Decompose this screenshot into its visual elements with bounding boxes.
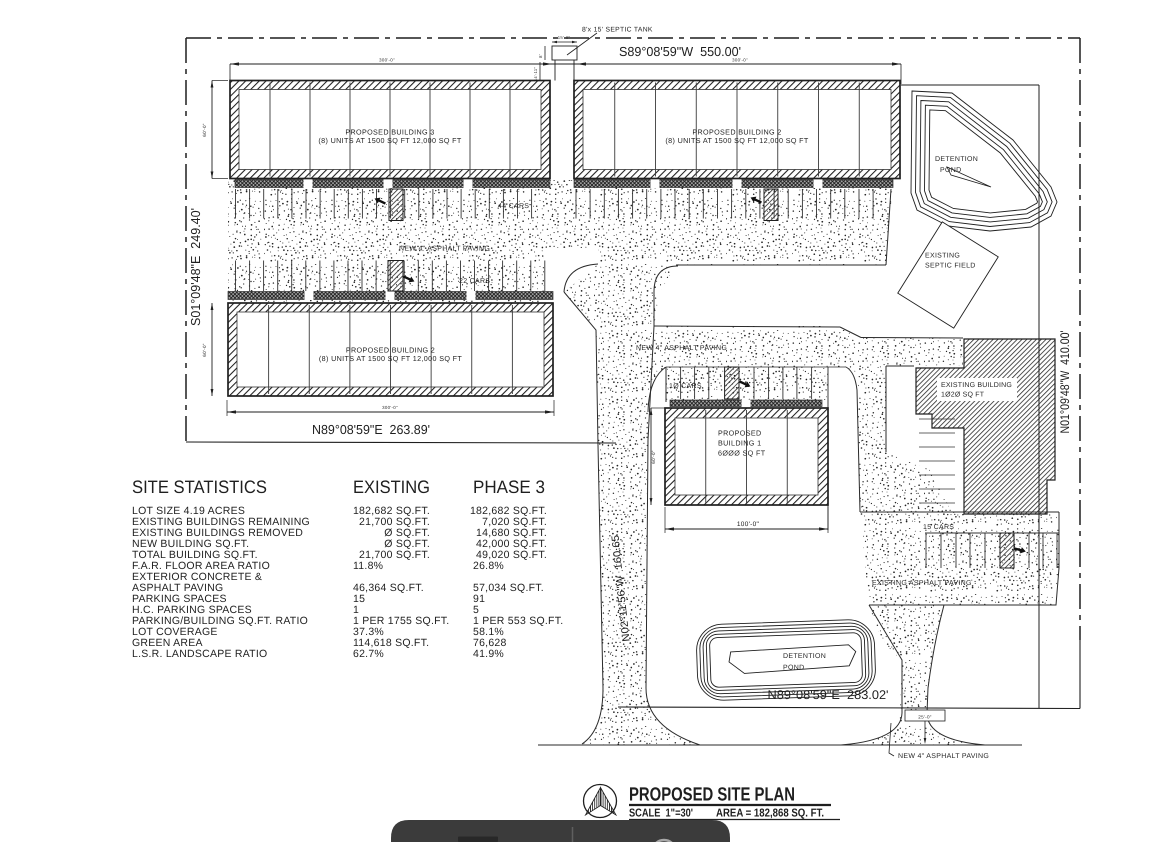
svg-text:S01°09'48"E 249.40': S01°09'48"E 249.40' bbox=[188, 208, 203, 326]
svg-text:SCALE 1"=30': SCALE 1"=30' bbox=[629, 808, 693, 820]
svg-text:(8) UNITS AT 1500 SQ FT 12,00: (8) UNITS AT 1500 SQ FT 12,000 SQ FT bbox=[319, 354, 462, 363]
svg-text:NEW 4" ASPHALT PAVING: NEW 4" ASPHALT PAVING bbox=[898, 753, 989, 760]
svg-text:POND: POND bbox=[783, 665, 804, 672]
svg-text:1Ø2Ø SQ FT: 1Ø2Ø SQ FT bbox=[941, 391, 985, 399]
svg-text:8': 8' bbox=[538, 54, 543, 58]
svg-text:N89°08'59"E 263.89': N89°08'59"E 263.89' bbox=[312, 422, 430, 437]
svg-text:6ØØØ SQ FT: 6ØØØ SQ FT bbox=[718, 449, 766, 458]
svg-text:14'-11": 14'-11" bbox=[533, 67, 538, 81]
svg-text:DETENTION: DETENTION bbox=[935, 156, 978, 163]
svg-text:SEPTIC FIELD: SEPTIC FIELD bbox=[925, 263, 976, 270]
svg-text:(8) UNITS AT 1500 SQ FT 12,00: (8) UNITS AT 1500 SQ FT 12,000 SQ FT bbox=[318, 136, 461, 145]
svg-text:EXISTING BUILDING: EXISTING BUILDING bbox=[941, 382, 1012, 389]
svg-text:AREA = 182,868 SQ. FT.: AREA = 182,868 SQ. FT. bbox=[716, 808, 824, 820]
svg-text:44 CARS: 44 CARS bbox=[498, 203, 529, 210]
svg-text:SITE STATISTICS: SITE STATISTICS bbox=[132, 477, 267, 497]
svg-text:26.8%: 26.8% bbox=[473, 560, 504, 572]
svg-text:DETENTION: DETENTION bbox=[783, 653, 826, 660]
svg-text:1Ø CARS: 1Ø CARS bbox=[669, 382, 702, 390]
svg-text:NEW 4" ASPHALT PAVING: NEW 4" ASPHALT PAVING bbox=[399, 246, 490, 253]
svg-text:PHASE 3: PHASE 3 bbox=[473, 477, 545, 497]
svg-text:100'-0": 100'-0" bbox=[737, 521, 760, 528]
svg-text:POND: POND bbox=[940, 167, 961, 174]
svg-text:(8) UNITS AT 1500 SQ FT 12,00: (8) UNITS AT 1500 SQ FT 12,000 SQ FT bbox=[665, 136, 808, 145]
svg-text:60'-0": 60'-0" bbox=[651, 450, 656, 464]
svg-text:N01°09'48"W 410.00': N01°09'48"W 410.00' bbox=[1058, 331, 1072, 434]
svg-text:L.S.R. LANDSCAPE RATIO: L.S.R. LANDSCAPE RATIO bbox=[132, 648, 267, 660]
svg-text:60'-0": 60'-0" bbox=[202, 123, 207, 137]
svg-text:N89°08'59"E 283.02': N89°08'59"E 283.02' bbox=[768, 688, 889, 702]
svg-text:PROPOSED SITE PLAN: PROPOSED SITE PLAN bbox=[629, 785, 795, 806]
svg-text:300'-0": 300'-0" bbox=[382, 405, 398, 410]
svg-text:EXISTING: EXISTING bbox=[925, 253, 960, 260]
svg-text:22 CARS: 22 CARS bbox=[459, 278, 490, 285]
svg-text:EXISTING ASPHALT PAVING: EXISTING ASPHALT PAVING bbox=[872, 580, 972, 587]
svg-text:EXISTING: EXISTING bbox=[353, 477, 430, 497]
svg-text:300'-0": 300'-0" bbox=[379, 58, 395, 63]
svg-text:15 CARS: 15 CARS bbox=[923, 524, 954, 531]
svg-text:25'-0": 25'-0" bbox=[918, 715, 932, 720]
svg-text:11.8%: 11.8% bbox=[353, 560, 383, 572]
svg-text:PROPOSED: PROPOSED bbox=[718, 429, 762, 438]
svg-text:NEW 4" ASPHALT PAVING: NEW 4" ASPHALT PAVING bbox=[636, 345, 727, 352]
svg-text:BUILDING 1: BUILDING 1 bbox=[718, 439, 761, 448]
svg-text:60'-0": 60'-0" bbox=[202, 343, 207, 357]
svg-text:41.9%: 41.9% bbox=[473, 648, 504, 660]
svg-text:8'x 15' SEPTIC TANK: 8'x 15' SEPTIC TANK bbox=[582, 27, 653, 34]
svg-text:62.7%: 62.7% bbox=[353, 648, 384, 660]
svg-text:S89°08'59"W 550.00': S89°08'59"W 550.00' bbox=[619, 44, 741, 59]
